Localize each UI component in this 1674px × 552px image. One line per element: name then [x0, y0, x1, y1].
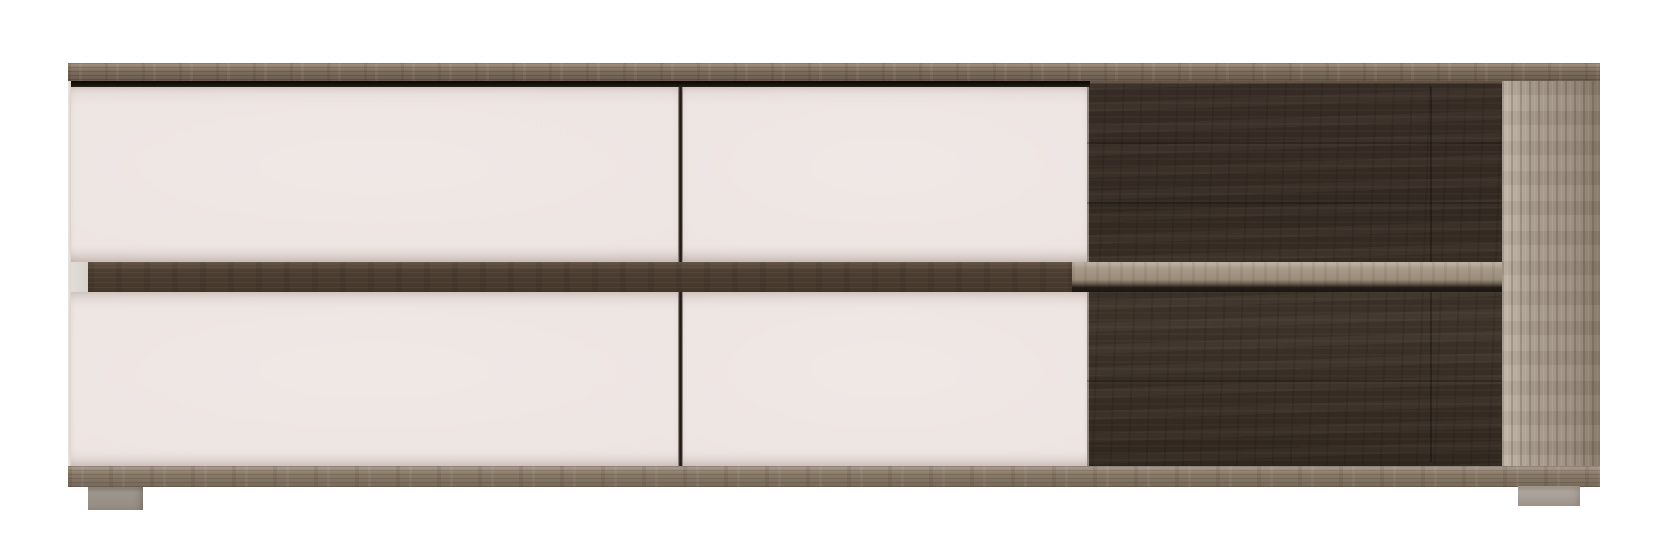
- drawer-front-bottom-left: [71, 292, 678, 466]
- middle-rail-carcass-sliver: [68, 262, 88, 292]
- compartment-back-panel-seam-horizontal: [1087, 202, 1502, 204]
- product-photo-canvas: [0, 0, 1674, 552]
- compartment-back-panel-seam-horizontal: [1087, 380, 1502, 382]
- top-panel: [68, 63, 1600, 81]
- right-side-panel: [1502, 81, 1600, 466]
- left-foot: [88, 487, 143, 510]
- drawer-gap-vertical-lower: [678, 292, 683, 466]
- middle-rail-dark-wood: [88, 262, 1072, 292]
- bottom-plinth-panel: [68, 466, 1600, 487]
- drawer-top-gap-shadow: [71, 81, 1090, 87]
- left-carcass-edge: [68, 81, 71, 466]
- compartment-back-panel-seam-horizontal: [1087, 142, 1502, 144]
- drawer-front-top-right: [683, 87, 1087, 262]
- drawer-front-bottom-right: [683, 292, 1087, 466]
- shelf-front-edge: [1072, 262, 1502, 292]
- drawer-gap-vertical-upper: [678, 87, 683, 262]
- right-foot: [1518, 486, 1580, 506]
- drawer-front-top-left: [71, 87, 678, 262]
